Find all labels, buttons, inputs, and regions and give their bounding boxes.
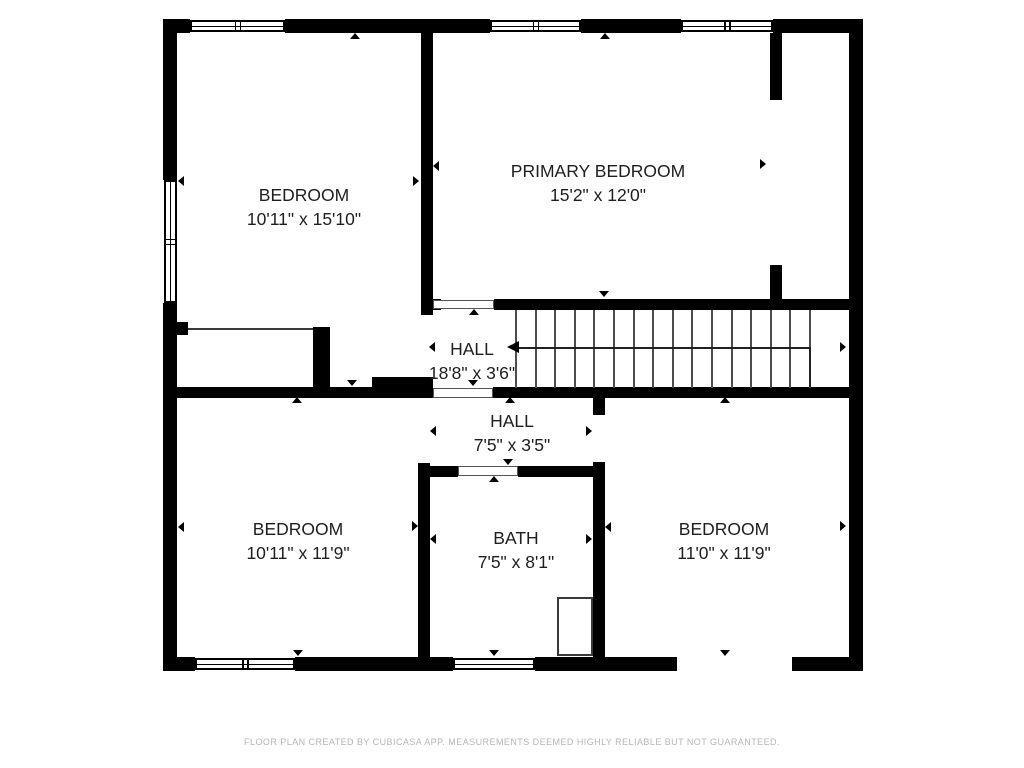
room-name: HALL [429, 337, 515, 361]
room-dims: 10'11" x 11'9" [246, 541, 349, 565]
measure-arrow-up [469, 309, 479, 315]
room-label-bedroom-bottom-left: BEDROOM 10'11" x 11'9" [246, 517, 349, 565]
closet-opening-line [188, 328, 313, 330]
stair-tread [574, 310, 576, 388]
measure-arrow-right [586, 426, 592, 436]
wall-segment [163, 303, 177, 671]
wall-segment [163, 657, 195, 671]
window-divider [533, 22, 535, 30]
window-midline [170, 182, 171, 301]
wall-segment [770, 265, 782, 310]
window-midline [492, 26, 579, 27]
room-dims: 11'0" x 11'9" [677, 541, 770, 565]
stair-tread [554, 310, 556, 388]
window-divider [240, 22, 242, 30]
room-label-bedroom-bottom-right: BEDROOM 11'0" x 11'9" [677, 517, 770, 565]
window-divider [724, 22, 726, 30]
window-horizontal [453, 658, 535, 670]
stair-tread [633, 310, 635, 388]
stair-tread [750, 310, 752, 388]
measure-arrow-down [293, 650, 303, 656]
stair-tread [770, 310, 772, 388]
measure-arrow-up [720, 397, 730, 403]
stair-tread [672, 310, 674, 388]
window-divider [235, 22, 237, 30]
wall-segment [535, 657, 677, 671]
room-name: BATH [478, 526, 555, 550]
wall-segment [593, 398, 605, 415]
measure-arrow-left [178, 176, 184, 186]
stair-tread [691, 310, 693, 388]
wall-segment [163, 19, 177, 180]
door-opening [458, 466, 518, 476]
stair-tread [652, 310, 654, 388]
measure-arrow-right [760, 159, 766, 169]
measure-arrow-left [433, 161, 439, 171]
wall-segment [493, 387, 849, 398]
room-label-hall-upper: HALL 18'8" x 3'6" [429, 337, 515, 385]
measure-arrow-left [605, 522, 611, 532]
measure-arrow-left [430, 534, 436, 544]
window-divider [729, 22, 731, 30]
room-name: BEDROOM [247, 183, 361, 207]
measure-arrow-down [720, 650, 730, 656]
wall-segment [518, 466, 605, 477]
window-horizontal [190, 20, 285, 32]
door-opening [433, 388, 493, 398]
wall-segment [372, 377, 433, 398]
door-opening [433, 300, 494, 309]
window-horizontal [681, 20, 773, 32]
measure-arrow-right [840, 342, 846, 352]
window-divider [166, 244, 175, 246]
measure-arrow-down [489, 650, 499, 656]
stair-tread [535, 310, 537, 388]
wall-segment [163, 387, 372, 398]
wall-segment [418, 463, 430, 657]
window-divider [166, 239, 175, 241]
window-divider [247, 660, 249, 668]
wall-segment [494, 299, 849, 310]
measure-arrow-up [489, 476, 499, 482]
wall-segment [421, 33, 433, 315]
window-horizontal [195, 658, 295, 670]
window-horizontal [490, 20, 581, 32]
room-label-primary-bedroom: PRIMARY BEDROOM 15'2" x 12'0" [511, 159, 685, 207]
wall-segment [285, 19, 490, 33]
room-name: BEDROOM [677, 517, 770, 541]
measure-arrow-right [586, 534, 592, 544]
measure-arrow-down [503, 459, 513, 465]
wall-segment [175, 322, 188, 335]
stair-tread [593, 310, 595, 388]
measure-arrow-up [292, 397, 302, 403]
measure-arrow-down [599, 291, 609, 297]
stair-tread [711, 310, 713, 388]
measure-arrow-left [178, 522, 184, 532]
footer-disclaimer: FLOOR PLAN CREATED BY CUBICASA APP. MEAS… [244, 737, 780, 747]
wall-segment [295, 657, 453, 671]
room-name: BEDROOM [246, 517, 349, 541]
stair-tread [731, 310, 733, 388]
floor-plan-page: BEDROOM 10'11" x 15'10" PRIMARY BEDROOM … [0, 0, 1024, 768]
wall-segment [430, 466, 458, 477]
room-dims: 7'5" x 3'5" [474, 433, 551, 457]
wall-segment [849, 19, 863, 671]
window-midline [197, 664, 293, 665]
wall-segment [770, 33, 782, 100]
measure-arrow-left [430, 426, 436, 436]
room-label-hall-lower: HALL 7'5" x 3'5" [474, 409, 551, 457]
window-divider [242, 660, 244, 668]
measure-arrow-up [505, 397, 515, 403]
measure-arrow-up [600, 33, 610, 39]
window-midline [683, 26, 771, 27]
stair-tread [789, 310, 791, 388]
measure-arrow-down [347, 380, 357, 386]
wall-segment [593, 462, 605, 657]
stair-direction-line [809, 347, 811, 387]
stair-tread [613, 310, 615, 388]
room-dims: 18'8" x 3'6" [429, 361, 515, 385]
room-name: PRIMARY BEDROOM [511, 159, 685, 183]
window-midline [192, 26, 283, 27]
window-midline [455, 664, 533, 665]
room-dims: 15'2" x 12'0" [511, 183, 685, 207]
room-dims: 10'11" x 15'10" [247, 207, 361, 231]
room-label-bath: BATH 7'5" x 8'1" [478, 526, 555, 574]
measure-arrow-right [840, 521, 846, 531]
measure-arrow-up [350, 33, 360, 39]
room-dims: 7'5" x 8'1" [478, 550, 555, 574]
room-name: HALL [474, 409, 551, 433]
room-label-bedroom-top-left: BEDROOM 10'11" x 15'10" [247, 183, 361, 231]
measure-arrow-right [413, 176, 419, 186]
window-divider [538, 22, 540, 30]
window-vertical [164, 180, 177, 303]
wall-segment [581, 19, 681, 33]
wall-segment [792, 657, 863, 671]
stair-direction-line [517, 347, 809, 349]
bath-fixture [557, 597, 593, 656]
measure-arrow-right [412, 521, 418, 531]
